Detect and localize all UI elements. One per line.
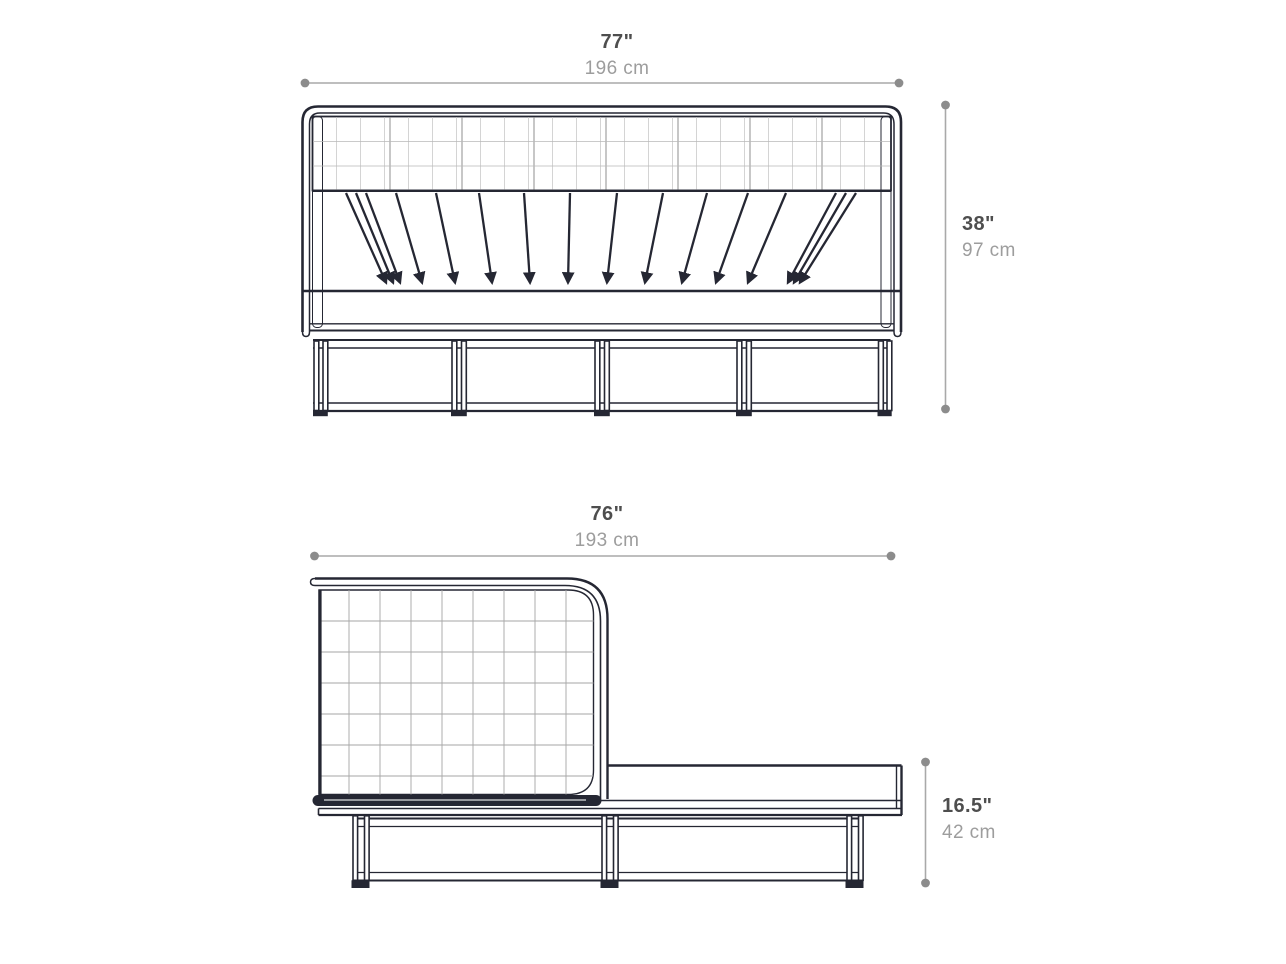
front-frame-tube-inner bbox=[310, 113, 895, 332]
dimension-line-side-height bbox=[921, 758, 930, 888]
inches-value: 16.5" bbox=[942, 793, 1082, 820]
side-view-drawing bbox=[311, 579, 903, 889]
side-frame-tube-inner bbox=[315, 586, 601, 800]
front-base-frame bbox=[313, 340, 892, 416]
side-cane-panel-seams bbox=[319, 590, 594, 795]
dimension-line-front-height bbox=[941, 101, 950, 414]
side-base-frame bbox=[352, 816, 864, 888]
side-base-legs bbox=[353, 816, 863, 881]
front-base-posts bbox=[314, 341, 892, 411]
dimension-label-side-length: 76" 193 cm bbox=[507, 501, 707, 554]
cm-value: 97 cm bbox=[962, 238, 1092, 264]
inches-value: 77" bbox=[517, 29, 717, 56]
side-frame-tube-outer bbox=[315, 579, 608, 800]
front-frame-tube-outer bbox=[303, 107, 902, 333]
cane-band-seams bbox=[313, 117, 890, 190]
bed-technical-drawing bbox=[0, 0, 1286, 964]
cm-value: 196 cm bbox=[517, 56, 717, 82]
front-cane-headboard-band bbox=[313, 117, 892, 191]
inches-value: 76" bbox=[507, 501, 707, 528]
dimension-diagram: 77" 196 cm 38" 97 cm 76" 193 cm 16.5" 42… bbox=[0, 0, 1286, 964]
dimension-label-front-height: 38" 97 cm bbox=[962, 211, 1092, 264]
dimension-label-side-height: 16.5" 42 cm bbox=[942, 793, 1082, 846]
front-view-drawing bbox=[303, 107, 902, 417]
side-platform bbox=[596, 766, 902, 816]
cm-value: 193 cm bbox=[507, 528, 707, 554]
inches-value: 38" bbox=[962, 211, 1092, 238]
cm-value: 42 cm bbox=[942, 820, 1082, 846]
front-cane-side-left bbox=[313, 117, 323, 328]
strap-direction-arrows bbox=[346, 193, 856, 283]
front-cane-side-right bbox=[881, 117, 891, 328]
dimension-label-front-width: 77" 196 cm bbox=[517, 29, 717, 82]
